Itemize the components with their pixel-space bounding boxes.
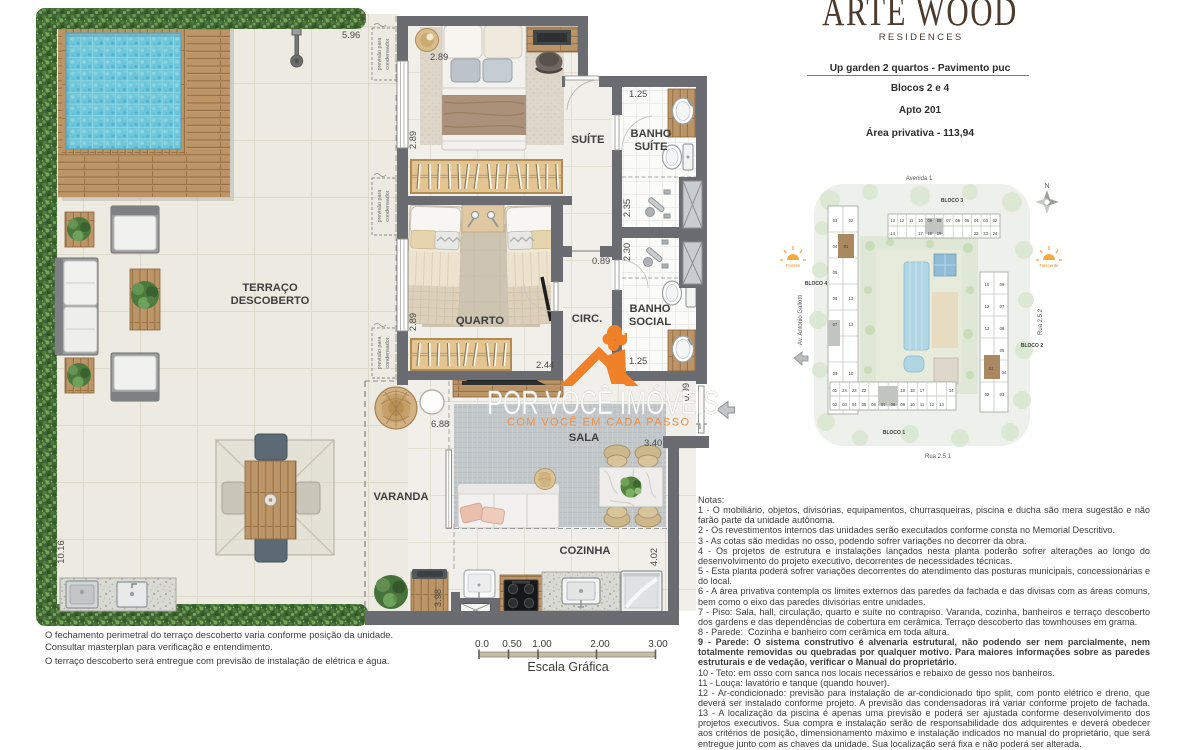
svg-text:Escala Gráfica: Escala Gráfica [527, 660, 608, 674]
svg-text:QUARTO: QUARTO [456, 315, 505, 327]
svg-text:3.98: 3.98 [432, 589, 443, 607]
svg-text:12: 12 [985, 304, 990, 309]
svg-text:03: 03 [842, 402, 847, 407]
svg-text:12: 12 [929, 402, 934, 407]
svg-text:08: 08 [937, 218, 942, 223]
svg-text:previsão para: previsão para [377, 38, 383, 71]
svg-text:Consultar masterplan para veri: Consultar masterplan para verificação e … [45, 641, 273, 652]
svg-text:02: 02 [849, 218, 854, 223]
svg-text:06: 06 [955, 218, 960, 223]
svg-text:01: 01 [989, 366, 994, 371]
svg-text:6.88: 6.88 [431, 418, 449, 429]
svg-text:1.25: 1.25 [629, 355, 647, 366]
svg-text:4.02: 4.02 [648, 548, 659, 566]
svg-text:10.16: 10.16 [55, 540, 66, 563]
svg-text:06: 06 [871, 402, 876, 407]
svg-text:11: 11 [909, 218, 914, 223]
svg-text:2.89: 2.89 [407, 313, 418, 331]
svg-text:SOCIAL: SOCIAL [629, 316, 671, 328]
svg-text:BLOCO 2: BLOCO 2 [1021, 343, 1043, 349]
svg-text:02: 02 [985, 392, 990, 397]
svg-text:17: 17 [918, 231, 923, 236]
svg-text:24: 24 [842, 388, 847, 393]
svg-text:06: 06 [833, 296, 838, 301]
svg-text:13: 13 [985, 326, 990, 331]
svg-text:SUÍTE: SUÍTE [635, 140, 668, 153]
svg-text:2.89: 2.89 [430, 51, 448, 62]
svg-text:Rua 2.5.1: Rua 2.5.1 [925, 454, 952, 460]
svg-text:11: 11 [920, 402, 925, 407]
svg-text:19: 19 [900, 388, 905, 393]
svg-text:02: 02 [832, 402, 837, 407]
svg-text:09: 09 [900, 402, 905, 407]
svg-text:03: 03 [833, 218, 838, 223]
svg-text:Rua 2.5.2: Rua 2.5.2 [1038, 308, 1044, 335]
svg-text:BLOCO 1: BLOCO 1 [883, 430, 905, 436]
svg-text:10: 10 [918, 218, 923, 223]
svg-text:condensador: condensador [385, 38, 391, 69]
svg-text:07: 07 [1000, 304, 1005, 309]
svg-text:BANHO: BANHO [630, 128, 671, 140]
svg-text:09: 09 [1000, 282, 1005, 287]
svg-text:Avenida 1: Avenida 1 [906, 176, 933, 182]
svg-text:2.30: 2.30 [621, 243, 632, 261]
svg-text:04: 04 [974, 218, 979, 223]
svg-text:01: 01 [832, 388, 837, 393]
svg-text:DESCOBERTO: DESCOBERTO [231, 295, 310, 307]
svg-text:VARANDA: VARANDA [373, 491, 428, 503]
svg-text:CIRC.: CIRC. [572, 313, 602, 325]
svg-text:0.89: 0.89 [592, 255, 610, 266]
svg-text:05: 05 [965, 218, 970, 223]
svg-text:18: 18 [927, 231, 932, 236]
svg-text:previsão para: previsão para [377, 190, 383, 223]
svg-text:09: 09 [927, 218, 932, 223]
svg-text:14: 14 [949, 388, 954, 393]
svg-text:08: 08 [891, 402, 896, 407]
svg-text:condensador: condensador [385, 190, 391, 221]
svg-text:06: 06 [1000, 326, 1005, 331]
svg-text:19: 19 [937, 231, 942, 236]
svg-text:02: 02 [993, 218, 998, 223]
svg-text:14: 14 [890, 231, 895, 236]
svg-text:01: 01 [844, 244, 849, 249]
svg-text:POR VOCÊ IMÓVEIS: POR VOCÊ IMÓVEIS [487, 384, 719, 421]
svg-text:3.40: 3.40 [644, 437, 662, 448]
svg-text:2.35: 2.35 [621, 199, 632, 217]
svg-text:SALA: SALA [569, 432, 599, 444]
svg-text:10: 10 [985, 282, 990, 287]
svg-text:Av. Antonio Gallotti: Av. Antonio Gallotti [798, 295, 804, 345]
svg-text:12: 12 [849, 322, 854, 327]
svg-text:O fechamento perimetral do ter: O fechamento perimetral do terraço desco… [45, 629, 393, 640]
svg-text:03: 03 [983, 218, 988, 223]
svg-text:2.89: 2.89 [407, 131, 418, 149]
svg-text:SUÍTE: SUÍTE [572, 133, 605, 146]
svg-text:2.00: 2.00 [590, 639, 610, 650]
svg-text:04: 04 [852, 402, 857, 407]
svg-text:23: 23 [983, 231, 988, 236]
svg-text:04: 04 [1002, 370, 1007, 375]
svg-text:07: 07 [881, 402, 886, 407]
svg-text:BANHO: BANHO [629, 303, 670, 315]
svg-text:TERRAÇO: TERRAÇO [242, 282, 298, 294]
svg-text:5.96: 5.96 [342, 29, 360, 40]
svg-text:BLOCO 4: BLOCO 4 [805, 281, 827, 287]
svg-text:BLOCO 3: BLOCO 3 [941, 198, 963, 204]
svg-text:COZINHA: COZINHA [560, 545, 611, 557]
svg-text:23: 23 [852, 388, 857, 393]
svg-text:Poente: Poente [786, 263, 801, 268]
svg-text:12: 12 [900, 218, 905, 223]
svg-text:18: 18 [910, 388, 915, 393]
svg-text:17: 17 [920, 388, 925, 393]
svg-text:O terraço descoberto será entr: O terraço descoberto será entregue com p… [45, 655, 389, 666]
svg-text:05: 05 [833, 270, 838, 275]
svg-text:1.00: 1.00 [532, 639, 552, 650]
svg-text:10: 10 [910, 402, 915, 407]
svg-text:10: 10 [849, 371, 854, 376]
svg-text:04: 04 [833, 244, 838, 249]
svg-text:13: 13 [849, 296, 854, 301]
svg-text:1.25: 1.25 [629, 88, 647, 99]
svg-text:22: 22 [862, 388, 867, 393]
svg-text:0.0: 0.0 [475, 639, 489, 650]
svg-text:05: 05 [1000, 348, 1005, 353]
svg-text:07: 07 [946, 218, 951, 223]
svg-text:0.50: 0.50 [502, 639, 522, 650]
svg-text:N: N [1044, 183, 1049, 190]
svg-text:09: 09 [833, 371, 838, 376]
svg-text:07: 07 [833, 322, 838, 327]
svg-text:13: 13 [890, 218, 895, 223]
svg-text:05: 05 [862, 402, 867, 407]
svg-text:13: 13 [939, 402, 944, 407]
svg-text:03: 03 [1000, 392, 1005, 397]
svg-text:3.00: 3.00 [648, 639, 668, 650]
svg-text:condensador: condensador [385, 337, 391, 368]
svg-text:COM VOCÊ EM CADA PASSO: COM VOCÊ EM CADA PASSO [507, 416, 691, 429]
svg-text:2.44: 2.44 [536, 359, 554, 370]
svg-text:Nascente: Nascente [1039, 263, 1059, 268]
svg-text:previsão para: previsão para [377, 337, 383, 370]
svg-text:22: 22 [974, 231, 979, 236]
